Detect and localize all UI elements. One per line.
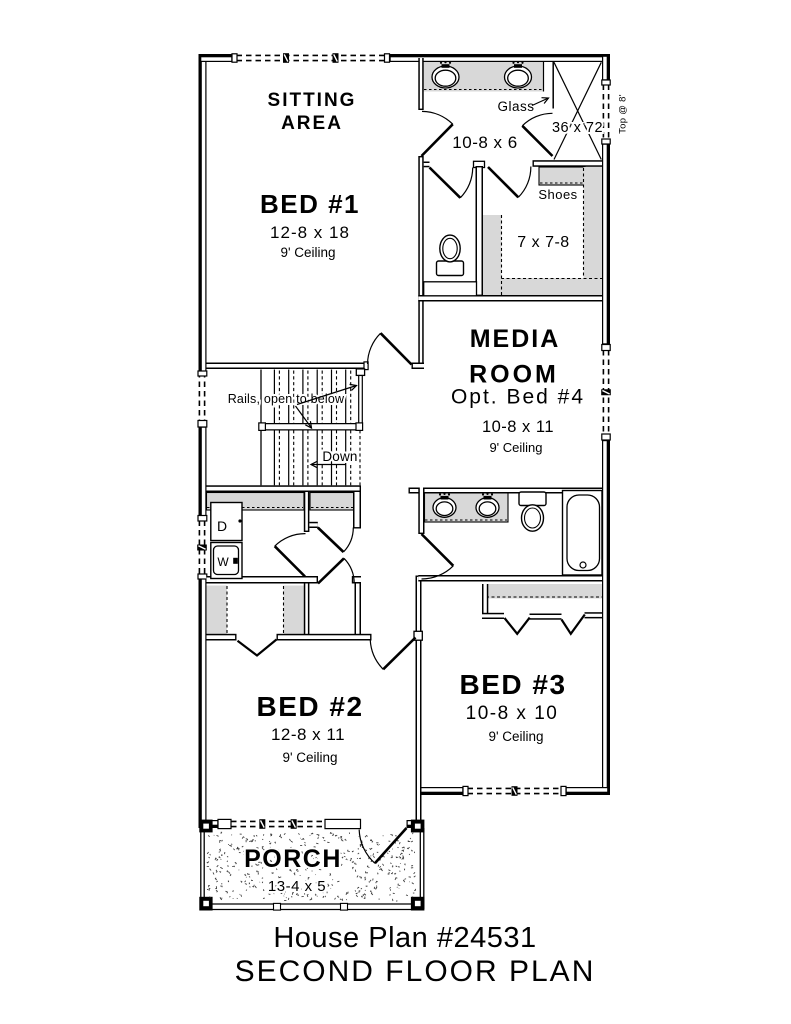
svg-text:PORCH: PORCH: [244, 845, 342, 873]
svg-text:D: D: [217, 518, 227, 534]
svg-text:SECOND FLOOR PLAN: SECOND FLOOR PLAN: [235, 955, 596, 988]
svg-text:Shoes: Shoes: [538, 187, 577, 202]
svg-text:12-8 x 18: 12-8 x 18: [270, 223, 350, 242]
svg-text:10-8 x 11: 10-8 x 11: [482, 418, 554, 436]
svg-text:7 x 7-8: 7 x 7-8: [517, 234, 569, 251]
svg-text:Glass: Glass: [497, 99, 534, 114]
svg-text:10-8 x 10: 10-8 x 10: [466, 703, 559, 724]
svg-text:ROOM: ROOM: [469, 361, 559, 389]
svg-text:SITTING: SITTING: [268, 90, 357, 111]
svg-text:MEDIA: MEDIA: [470, 325, 561, 353]
svg-text:13-4 x 5: 13-4 x 5: [268, 878, 326, 895]
svg-text:9' Ceiling: 9' Ceiling: [488, 729, 543, 744]
svg-text:AREA: AREA: [281, 113, 343, 134]
svg-text:Top @ 8': Top @ 8': [618, 94, 629, 134]
svg-text:9' Ceiling: 9' Ceiling: [489, 440, 542, 455]
svg-text:Down: Down: [322, 449, 357, 464]
svg-text:Opt. Bed #4: Opt. Bed #4: [451, 386, 585, 409]
svg-text:10-8 x 6: 10-8 x 6: [452, 133, 517, 152]
svg-text:House Plan #24531: House Plan #24531: [273, 922, 536, 954]
svg-text:36 x 72: 36 x 72: [552, 120, 603, 136]
svg-text:9' Ceiling: 9' Ceiling: [282, 750, 337, 765]
svg-text:BED #1: BED #1: [260, 189, 360, 219]
svg-text:12-8 x 11: 12-8 x 11: [271, 725, 345, 744]
svg-text:W: W: [217, 555, 229, 569]
svg-text:Rails, open to below: Rails, open to below: [228, 392, 345, 406]
svg-text:BED #2: BED #2: [256, 691, 363, 722]
svg-text:9' Ceiling: 9' Ceiling: [280, 245, 335, 260]
svg-text:BED #3: BED #3: [459, 669, 566, 700]
